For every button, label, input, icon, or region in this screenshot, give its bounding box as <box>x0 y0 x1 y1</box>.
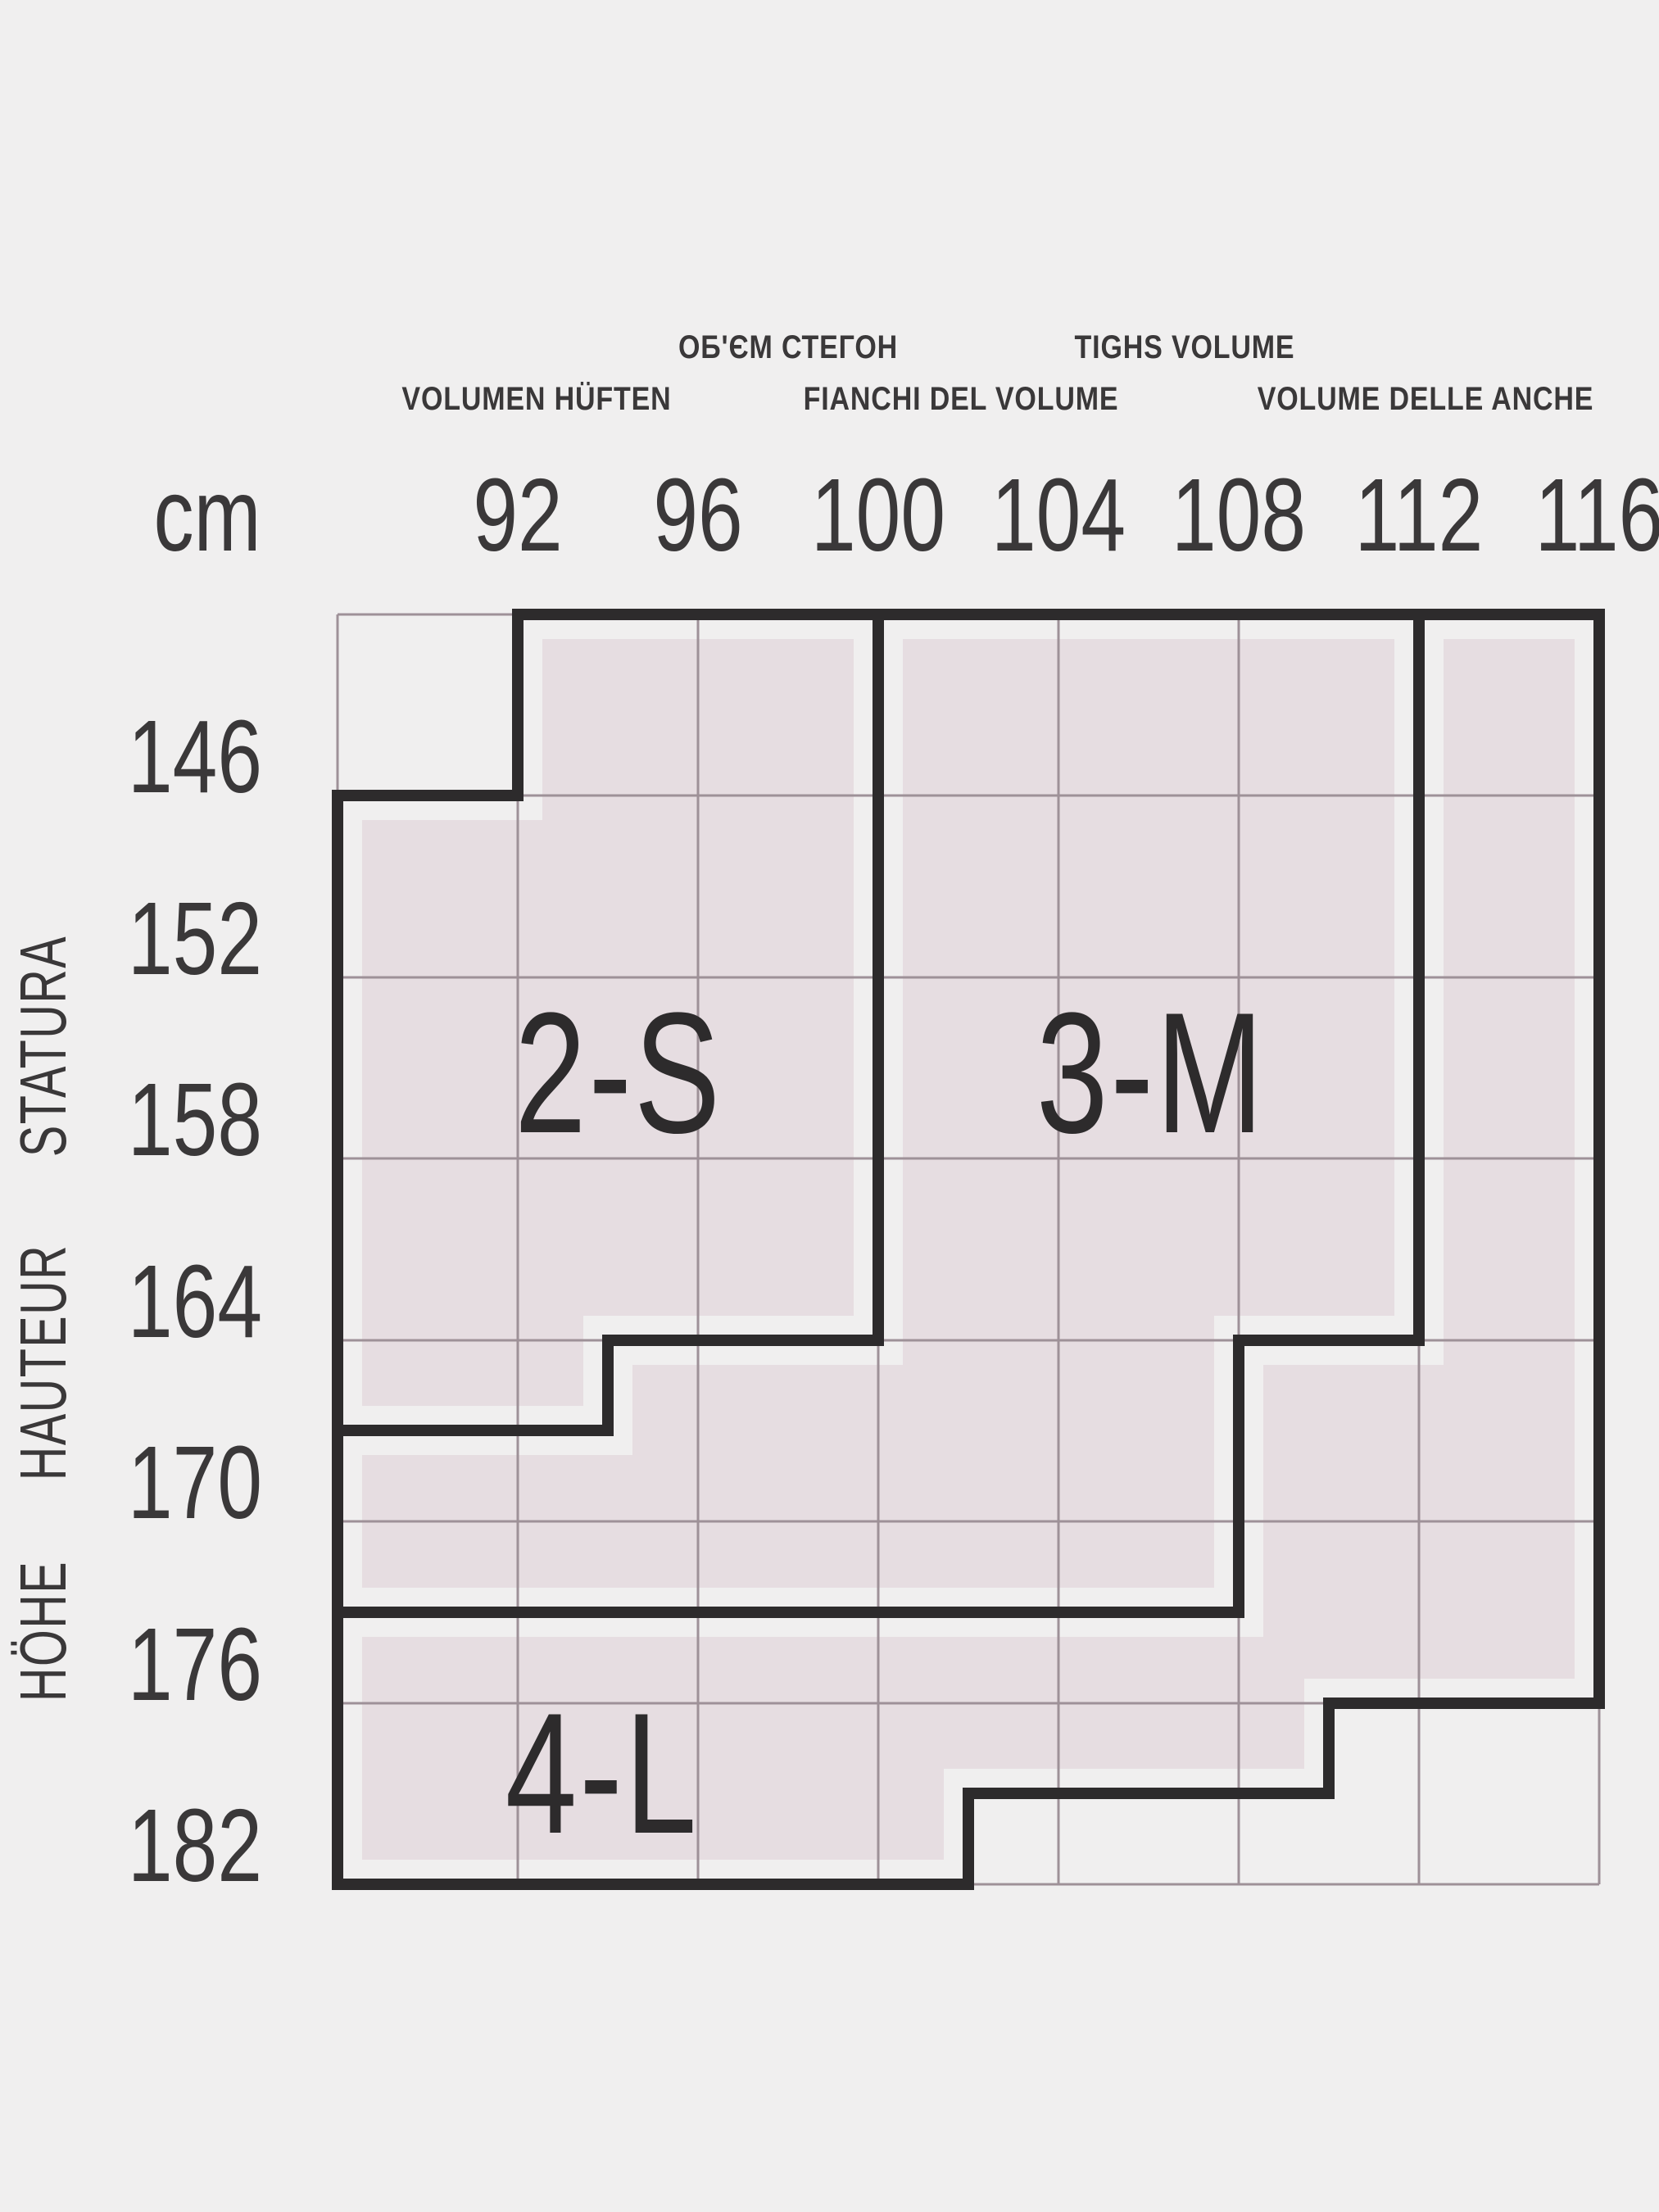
x-tick-92: 92 <box>473 457 562 573</box>
header-label-en: TIGHS VOLUME <box>1075 328 1295 365</box>
size-label-3m: 3-M <box>1036 977 1266 1169</box>
x-tick-108: 108 <box>1172 457 1306 573</box>
y-tick-152: 152 <box>128 881 262 996</box>
x-tick-96: 96 <box>653 457 742 573</box>
y-axis-label-hauteur: HAUTEUR <box>7 1244 80 1480</box>
x-axis-ticks: cm 92 96 100 104 108 112 116 <box>154 457 1659 573</box>
size-chart: ОБ'ЄМ СТЕГОН TIGHS VOLUME VOLUMEN HÜFTEN… <box>0 0 1659 2212</box>
unit-label-cm: cm <box>154 457 261 573</box>
column-axis-headers: ОБ'ЄМ СТЕГОН TIGHS VOLUME VOLUMEN HÜFTEN… <box>401 328 1593 416</box>
x-tick-100: 100 <box>811 457 945 573</box>
header-label-it-2: VOLUME DELLE ANCHE <box>1258 379 1594 416</box>
y-tick-170: 170 <box>128 1425 262 1540</box>
y-axis-ticks: 146 152 158 164 170 176 182 <box>128 699 262 1903</box>
y-tick-182: 182 <box>128 1788 262 1903</box>
y-axis-label-hohe: HÖHE <box>7 1561 80 1702</box>
size-chart-canvas: ОБ'ЄМ СТЕГОН TIGHS VOLUME VOLUMEN HÜFTEN… <box>0 0 1659 2212</box>
x-tick-104: 104 <box>991 457 1126 573</box>
y-tick-158: 158 <box>128 1062 262 1177</box>
x-tick-112: 112 <box>1355 457 1484 573</box>
x-tick-116: 116 <box>1535 457 1659 573</box>
y-axis-label-statura: STATURA <box>7 936 80 1157</box>
size-label-4l: 4-L <box>505 1678 700 1870</box>
y-axis-headers: STATURA HAUTEUR HÖHE <box>7 936 80 1702</box>
size-label-2s: 2-S <box>514 977 723 1169</box>
header-label-uk: ОБ'ЄМ СТЕГОН <box>678 328 898 365</box>
y-tick-146: 146 <box>128 699 262 814</box>
size-region-fills <box>362 639 1575 1860</box>
y-tick-164: 164 <box>128 1244 262 1359</box>
y-tick-176: 176 <box>128 1607 262 1722</box>
header-label-it: FIANCHI DEL VOLUME <box>804 379 1119 416</box>
header-label-de: VOLUMEN HÜFTEN <box>401 379 671 416</box>
